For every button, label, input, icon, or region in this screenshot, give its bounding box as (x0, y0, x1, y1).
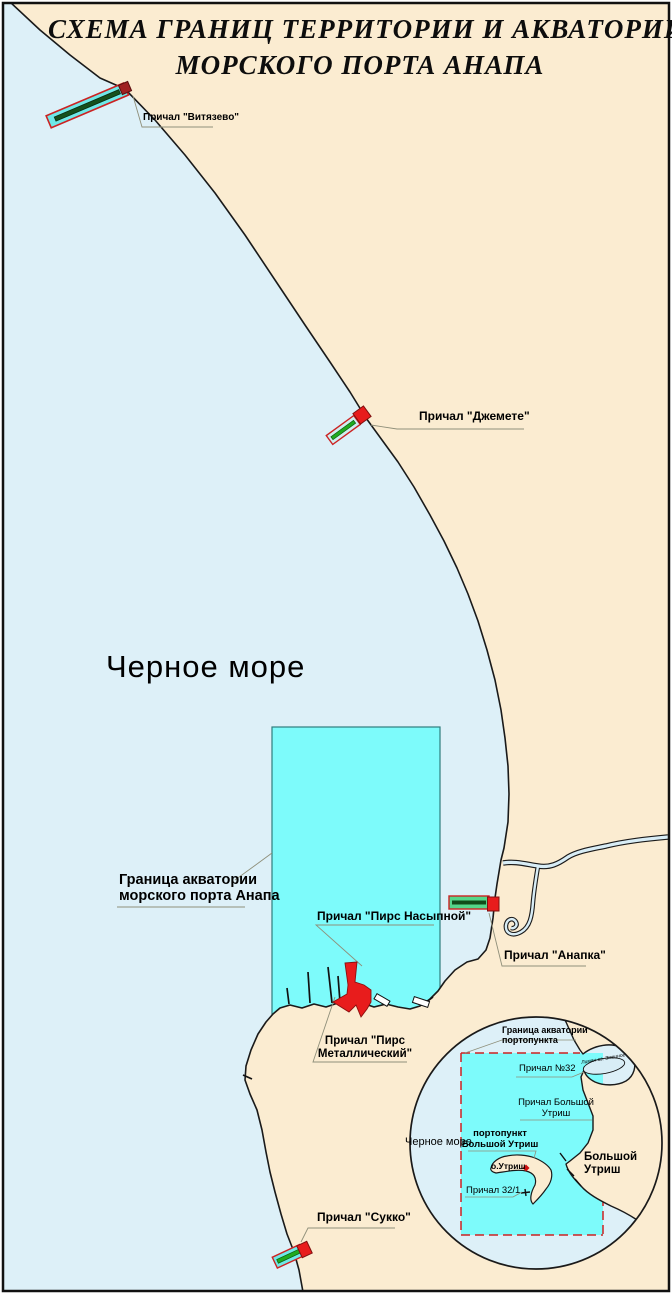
inset-label-boundary: Граница акватории портопункта (502, 1025, 588, 1045)
port-anapa-map: СХЕМА ГРАНИЦ ТЕРРИТОРИИ И АКВАТОРИИ МОРС… (0, 0, 672, 1299)
inset-label-sea: Черное море (405, 1136, 472, 1148)
inset-label-pier-bolshoy-utrish: Причал Большой Утриш (516, 1098, 596, 1119)
label-pier-anapka: Причал "Анапка" (504, 949, 606, 962)
label-pier-nasypnoy: Причал "Пирс Насыпной" (317, 910, 471, 923)
sea-label: Черное море (106, 650, 305, 685)
inset-label-pier32: Причал №32 (519, 1064, 576, 1075)
map-title-line1: СХЕМА ГРАНИЦ ТЕРРИТОРИИ И АКВАТОРИИ (48, 14, 672, 45)
label-aquatory-boundary: Граница акватории морского порта Анапа (119, 873, 280, 905)
label-pier-vityazevo: Причал "Витязево" (143, 112, 239, 123)
label-pier-sukko: Причал "Сукко" (317, 1211, 411, 1224)
map-title-line2: МОРСКОГО ПОРТА АНАПА (48, 50, 672, 81)
label-pier-dzhemete: Причал "Джемете" (419, 410, 530, 423)
inset-label-utrish-island: о.Утриш (491, 1162, 526, 1172)
inset-label-bolshoy-utrish: Большой Утриш (584, 1151, 672, 1177)
label-pier-metallicheskiy: Причал "Пирс Металлический" (300, 1035, 430, 1061)
inset-label-pier321: Причал 32/1 (466, 1186, 520, 1197)
